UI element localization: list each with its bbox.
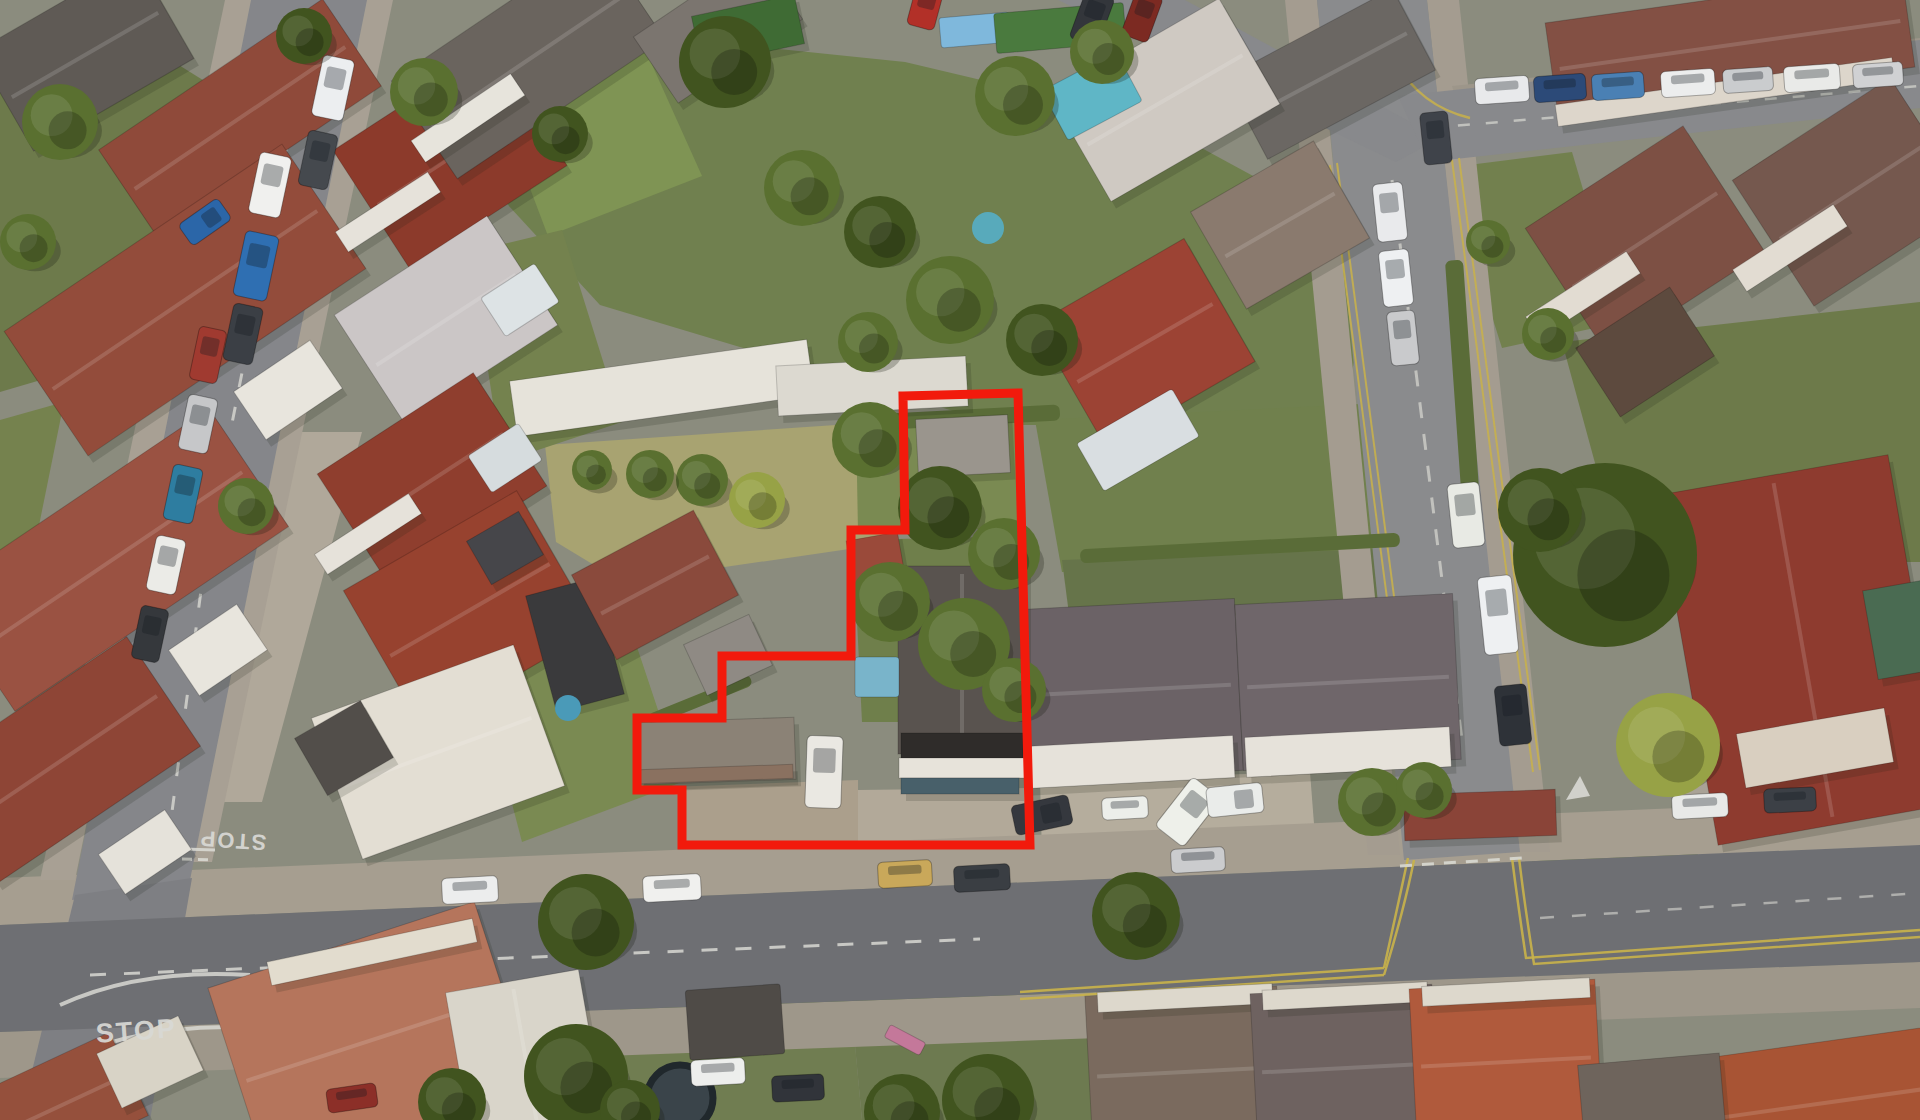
tree-shade: [711, 49, 757, 95]
tree-shade: [1092, 43, 1124, 75]
car-windshield: [309, 140, 331, 162]
tree-shade: [859, 334, 889, 364]
tree-shade: [1031, 330, 1067, 366]
tree-shade: [859, 429, 897, 467]
tree-shade: [937, 288, 981, 332]
car-windshield: [189, 404, 211, 426]
tree-shade: [869, 222, 905, 258]
tree-shade: [1004, 681, 1036, 713]
tree-shade: [643, 467, 667, 491]
car-windshield: [452, 881, 487, 892]
car-windshield: [157, 545, 179, 567]
garden-feature: [972, 212, 1004, 244]
tree-shade: [1527, 498, 1569, 540]
car-windshield: [654, 878, 690, 889]
tree-shade: [1362, 792, 1396, 826]
tree-shade: [1540, 327, 1566, 353]
garden-structure: [685, 984, 785, 1060]
car-windshield: [1385, 259, 1405, 280]
tree-shade: [927, 496, 969, 538]
building-roof: [901, 778, 1019, 794]
car-windshield: [1773, 791, 1806, 801]
tree-shade: [878, 591, 918, 631]
aerial-scene-canvas: STOPSTOP: [0, 0, 1920, 1120]
tree-shade: [1416, 782, 1444, 810]
tree-shade: [414, 82, 448, 116]
aerial-map-view: STOPSTOP: [0, 0, 1920, 1120]
car-windshield: [1454, 493, 1476, 517]
tree-shade: [1481, 236, 1503, 258]
tree-shade: [552, 126, 580, 154]
tree-shade: [238, 498, 266, 526]
building-roof: [1578, 1053, 1727, 1120]
tree-shade: [1003, 85, 1043, 125]
garden-feature: [555, 695, 581, 721]
tree-shade: [694, 473, 720, 499]
tree-shade: [791, 177, 829, 215]
car-windshield: [1110, 800, 1139, 809]
tree-shade: [1652, 730, 1704, 782]
car-windshield: [1379, 192, 1400, 214]
garden-structure: [855, 657, 899, 697]
car-windshield: [1501, 694, 1523, 716]
tree-shade: [1577, 529, 1669, 621]
tree-shade: [572, 909, 620, 957]
building-roof: [901, 733, 1023, 759]
car-windshield: [964, 869, 999, 880]
car-windshield: [701, 1063, 735, 1074]
building-roof: [899, 758, 1025, 778]
car-windshield: [1485, 588, 1509, 617]
tree-shade: [49, 111, 87, 149]
car-windshield: [1233, 789, 1254, 809]
stop-road-marking: STOP: [95, 1013, 178, 1049]
car-windshield: [174, 474, 196, 496]
tree-shade: [1123, 904, 1167, 948]
car-windshield: [1393, 319, 1412, 339]
tree-shade: [20, 234, 48, 262]
car-windshield: [888, 865, 922, 876]
tree-shade: [586, 464, 606, 484]
car-windshield: [1426, 120, 1445, 139]
stop-road-marking: STOP: [198, 826, 267, 856]
car-windshield: [781, 1079, 814, 1090]
tree-shade: [296, 28, 324, 56]
car-windshield: [813, 748, 836, 773]
tree-shade: [749, 492, 777, 520]
